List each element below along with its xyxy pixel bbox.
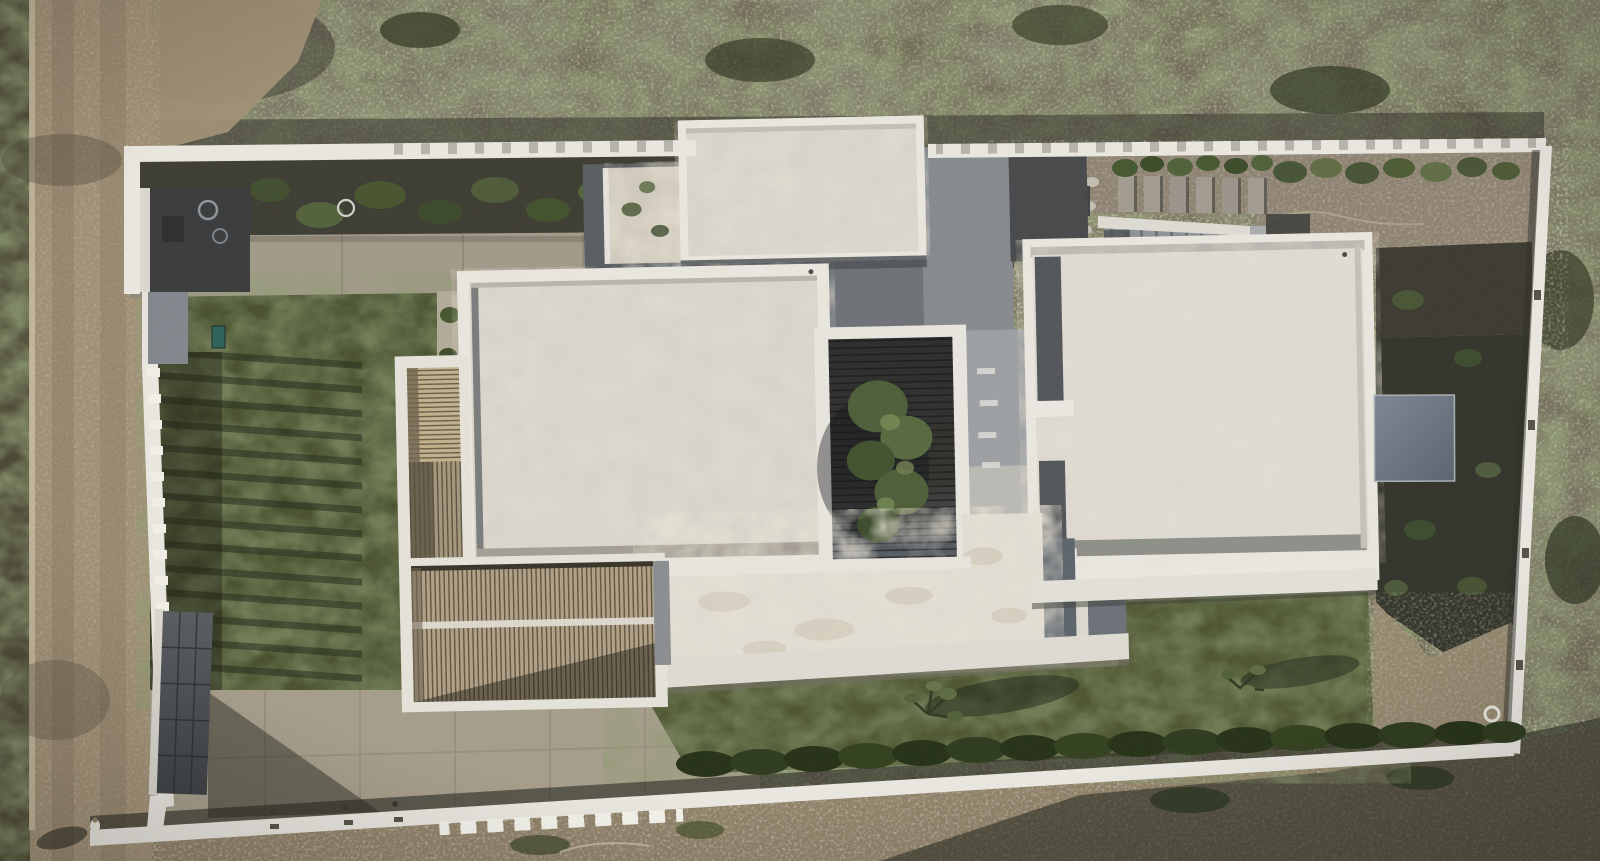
vignette bbox=[0, 0, 1600, 861]
aerial-photo-stage bbox=[0, 0, 1600, 861]
aerial-photo bbox=[0, 0, 1600, 861]
